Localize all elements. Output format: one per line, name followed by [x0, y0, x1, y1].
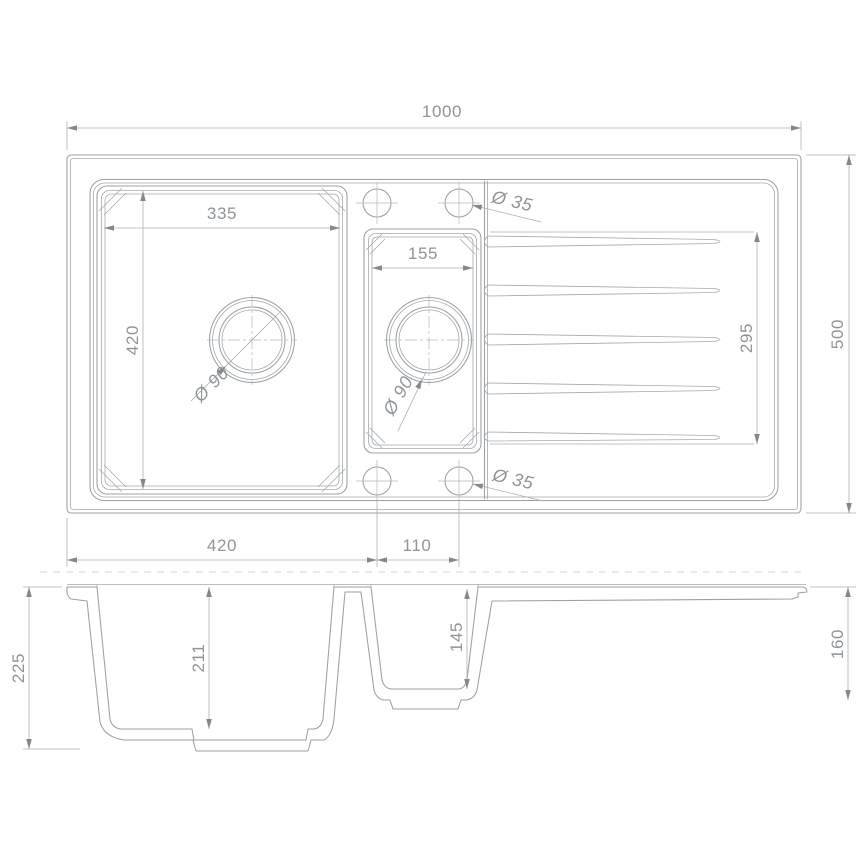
sink-technical-drawing: 1000 500 335 420 1 [0, 0, 868, 868]
dim-main-bowl-depth-label: 211 [189, 644, 208, 673]
dim-main-bowl-depth: 211 [189, 587, 212, 729]
dim-tap-hole-bottom-label: Ø 35 [490, 464, 536, 493]
dim-main-bowl-length-label: 420 [123, 325, 142, 355]
small-drain [384, 295, 474, 385]
dim-small-bowl-width-label: 155 [408, 244, 438, 263]
dim-section-overall-depth: 225 [9, 587, 80, 749]
dim-section-overall-depth-label: 225 [9, 653, 28, 683]
dim-tap-hole-top: Ø 35 [471, 186, 541, 222]
drainer-ribs [485, 236, 721, 441]
dim-overall-width: 1000 [67, 102, 801, 150]
dim-small-bowl-depth-label: 145 [447, 622, 466, 652]
plan-view [67, 155, 801, 513]
dim-bottom-chain: 420 110 [67, 500, 459, 567]
drawing-svg: 1000 500 335 420 1 [0, 0, 868, 868]
dim-overall-depth-label: 500 [828, 319, 847, 349]
drainer-rib [485, 334, 721, 345]
dim-drainer-end-depth: 160 [810, 587, 856, 700]
drainer-rib [485, 285, 721, 296]
drainer-rib [485, 383, 721, 394]
dim-overall-width-label: 1000 [422, 102, 462, 121]
tap-hole-bottom-right [438, 460, 480, 502]
dim-main-bowl-width-label: 335 [207, 204, 237, 223]
dim-tap-hole-bottom: Ø 35 [472, 464, 543, 501]
drainer-rib [485, 236, 721, 247]
sink-outer-edge [67, 155, 801, 513]
drainer-rib [485, 432, 721, 441]
dim-main-drain: Ø 90 [189, 311, 281, 407]
tap-holes [356, 182, 480, 502]
dim-main-bowl-width: 335 [104, 204, 340, 231]
tap-hole-top-right [438, 182, 480, 224]
dim-main-drain-label: Ø 90 [189, 363, 233, 407]
dim-hole-spacing-label: 110 [403, 536, 432, 555]
section-dimensions: 225 211 145 160 [9, 587, 856, 749]
dim-small-drain-label: Ø 90 [379, 373, 418, 420]
dim-drainer-length-label: 295 [737, 323, 756, 353]
section-view [67, 585, 807, 752]
dim-main-bowl-length: 420 [123, 191, 146, 489]
sink-outer-edge-inner-line [71, 159, 798, 510]
dim-drainer-length: 295 [490, 232, 760, 444]
dim-small-bowl-width: 155 [372, 244, 473, 271]
tap-hole-top-left [356, 182, 398, 224]
dim-overall-depth: 500 [806, 155, 856, 513]
tap-hole-bottom-left [356, 460, 398, 502]
section-shell [67, 587, 807, 751]
dim-small-bowl-depth: 145 [447, 589, 470, 689]
drainer-divider [485, 181, 488, 499]
dim-edge-to-hole-label: 420 [207, 536, 237, 555]
dim-drainer-end-depth-label: 160 [828, 629, 847, 659]
